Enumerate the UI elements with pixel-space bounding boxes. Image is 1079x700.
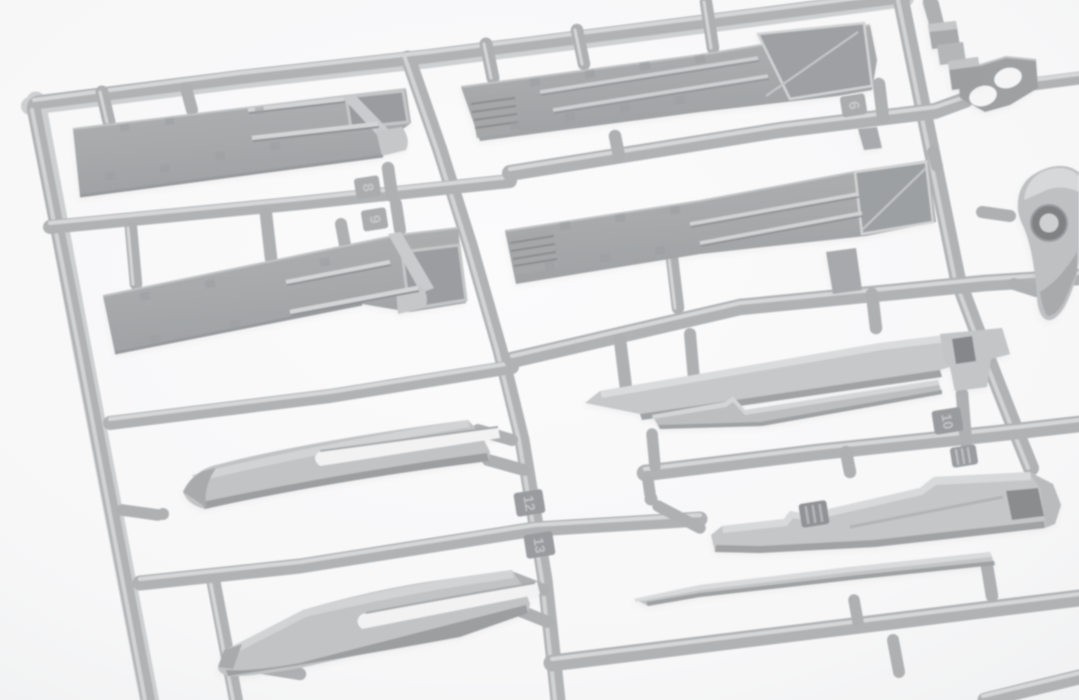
svg-text:10: 10 [938,412,956,430]
svg-text:12: 12 [520,494,538,512]
svg-text:13: 13 [530,536,548,554]
